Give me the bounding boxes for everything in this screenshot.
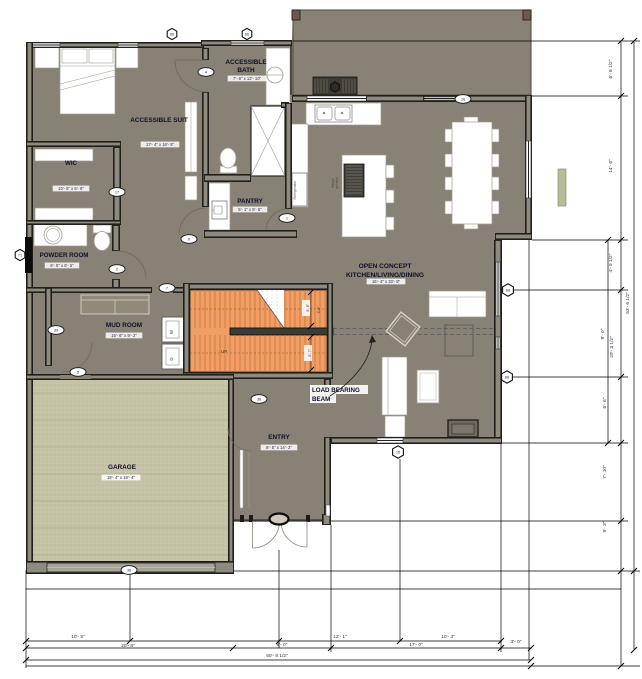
svg-text:PANTRY: PANTRY bbox=[237, 198, 263, 205]
svg-text:9'- 0": 9'- 0" bbox=[600, 328, 606, 339]
svg-text:3'- 7": 3'- 7" bbox=[308, 348, 312, 357]
svg-text:Refrigerator: Refrigerator bbox=[293, 180, 297, 200]
svg-text:D: D bbox=[169, 357, 174, 360]
svg-text:3'- 6": 3'- 6" bbox=[306, 303, 310, 312]
svg-text:15: 15 bbox=[396, 450, 400, 454]
svg-text:66: 66 bbox=[245, 32, 249, 36]
svg-text:4'- 9 1/2": 4'- 9 1/2" bbox=[608, 253, 614, 272]
svg-text:6'- 6 1/2": 6'- 6 1/2" bbox=[608, 59, 614, 78]
svg-text:50'- 8 1/2": 50'- 8 1/2" bbox=[266, 653, 288, 659]
svg-text:7'- 6" x 12'- 10": 7'- 6" x 12'- 10" bbox=[233, 76, 262, 81]
svg-text:36: 36 bbox=[127, 568, 131, 573]
svg-text:36: 36 bbox=[257, 397, 261, 402]
svg-text:66: 66 bbox=[170, 32, 174, 36]
svg-text:14'- 6": 14'- 6" bbox=[608, 159, 614, 173]
svg-text:10'- 5" x 5'- 9": 10'- 5" x 5'- 9" bbox=[58, 186, 84, 191]
svg-text:ACCESSIBLE SUIT: ACCESSIBLE SUIT bbox=[130, 117, 188, 124]
svg-text:POWDER ROOM: POWDER ROOM bbox=[40, 252, 89, 259]
svg-text:BEAM: BEAM bbox=[312, 396, 330, 403]
svg-text:17: 17 bbox=[115, 190, 119, 195]
svg-text:UP: UP bbox=[221, 349, 227, 354]
svg-text:8'- 5" x 6'- 5": 8'- 5" x 6'- 5" bbox=[50, 263, 74, 268]
svg-text:20'- 8": 20'- 8" bbox=[121, 643, 135, 649]
svg-text:10'- 3": 10'- 3" bbox=[441, 634, 455, 640]
svg-text:20'- 3 1/2": 20'- 3 1/2" bbox=[609, 336, 615, 358]
svg-text:17'- 4" x 16'- 8": 17'- 4" x 16'- 8" bbox=[146, 142, 175, 147]
svg-text:16: 16 bbox=[461, 97, 465, 102]
svg-text:8'- 0": 8'- 0" bbox=[277, 642, 288, 648]
svg-text:5: 5 bbox=[77, 370, 79, 375]
svg-text:66: 66 bbox=[506, 288, 510, 292]
svg-text:10'- 5": 10'- 5" bbox=[71, 634, 85, 640]
svg-text:3'-6": 3'-6" bbox=[317, 306, 321, 314]
svg-text:15'- 6" x 9'- 2": 15'- 6" x 9'- 2" bbox=[111, 333, 137, 338]
svg-text:KITCHEN/LIVING/DINING: KITCHEN/LIVING/DINING bbox=[346, 272, 424, 279]
svg-text:12'- 1": 12'- 1" bbox=[333, 634, 347, 640]
svg-text:3'- 0": 3'- 0" bbox=[511, 639, 522, 645]
svg-text:GARAGE: GARAGE bbox=[108, 464, 137, 471]
svg-text:6: 6 bbox=[188, 237, 190, 242]
svg-text:7: 7 bbox=[166, 286, 168, 291]
svg-text:39: 39 bbox=[54, 328, 58, 333]
svg-text:w/ Hood: w/ Hood bbox=[335, 177, 339, 189]
svg-text:ENTRY: ENTRY bbox=[268, 434, 290, 441]
svg-text:5'- 1" x 5'- 5": 5'- 1" x 5'- 5" bbox=[238, 207, 262, 212]
svg-text:ACCESSIBLE: ACCESSIBLE bbox=[225, 59, 267, 66]
svg-text:7'- 10": 7'- 10" bbox=[602, 465, 608, 479]
svg-text:1: 1 bbox=[286, 216, 288, 221]
svg-text:2: 2 bbox=[116, 267, 118, 272]
svg-text:19'- 4" x 19'- 4": 19'- 4" x 19'- 4" bbox=[107, 475, 136, 480]
svg-text:53'- 6 1/2": 53'- 6 1/2" bbox=[625, 292, 631, 314]
svg-text:WIC: WIC bbox=[65, 160, 78, 167]
svg-text:9'- 3": 9'- 3" bbox=[602, 521, 608, 532]
svg-text:68: 68 bbox=[505, 375, 509, 379]
svg-text:17'- 0": 17'- 0" bbox=[409, 642, 423, 648]
svg-text:71: 71 bbox=[18, 253, 22, 257]
svg-text:LOAD BEARING: LOAD BEARING bbox=[312, 387, 360, 394]
svg-text:6'- 6": 6'- 6" bbox=[602, 397, 608, 408]
svg-text:16'- 4" x 33'- 8": 16'- 4" x 33'- 8" bbox=[372, 279, 401, 284]
svg-text:OPEN CONCEPT: OPEN CONCEPT bbox=[359, 263, 412, 270]
svg-text:BATH: BATH bbox=[237, 67, 255, 74]
svg-text:8'- 5" x 14'- 2": 8'- 5" x 14'- 2" bbox=[266, 445, 292, 450]
svg-text:MUD ROOM: MUD ROOM bbox=[106, 322, 142, 329]
